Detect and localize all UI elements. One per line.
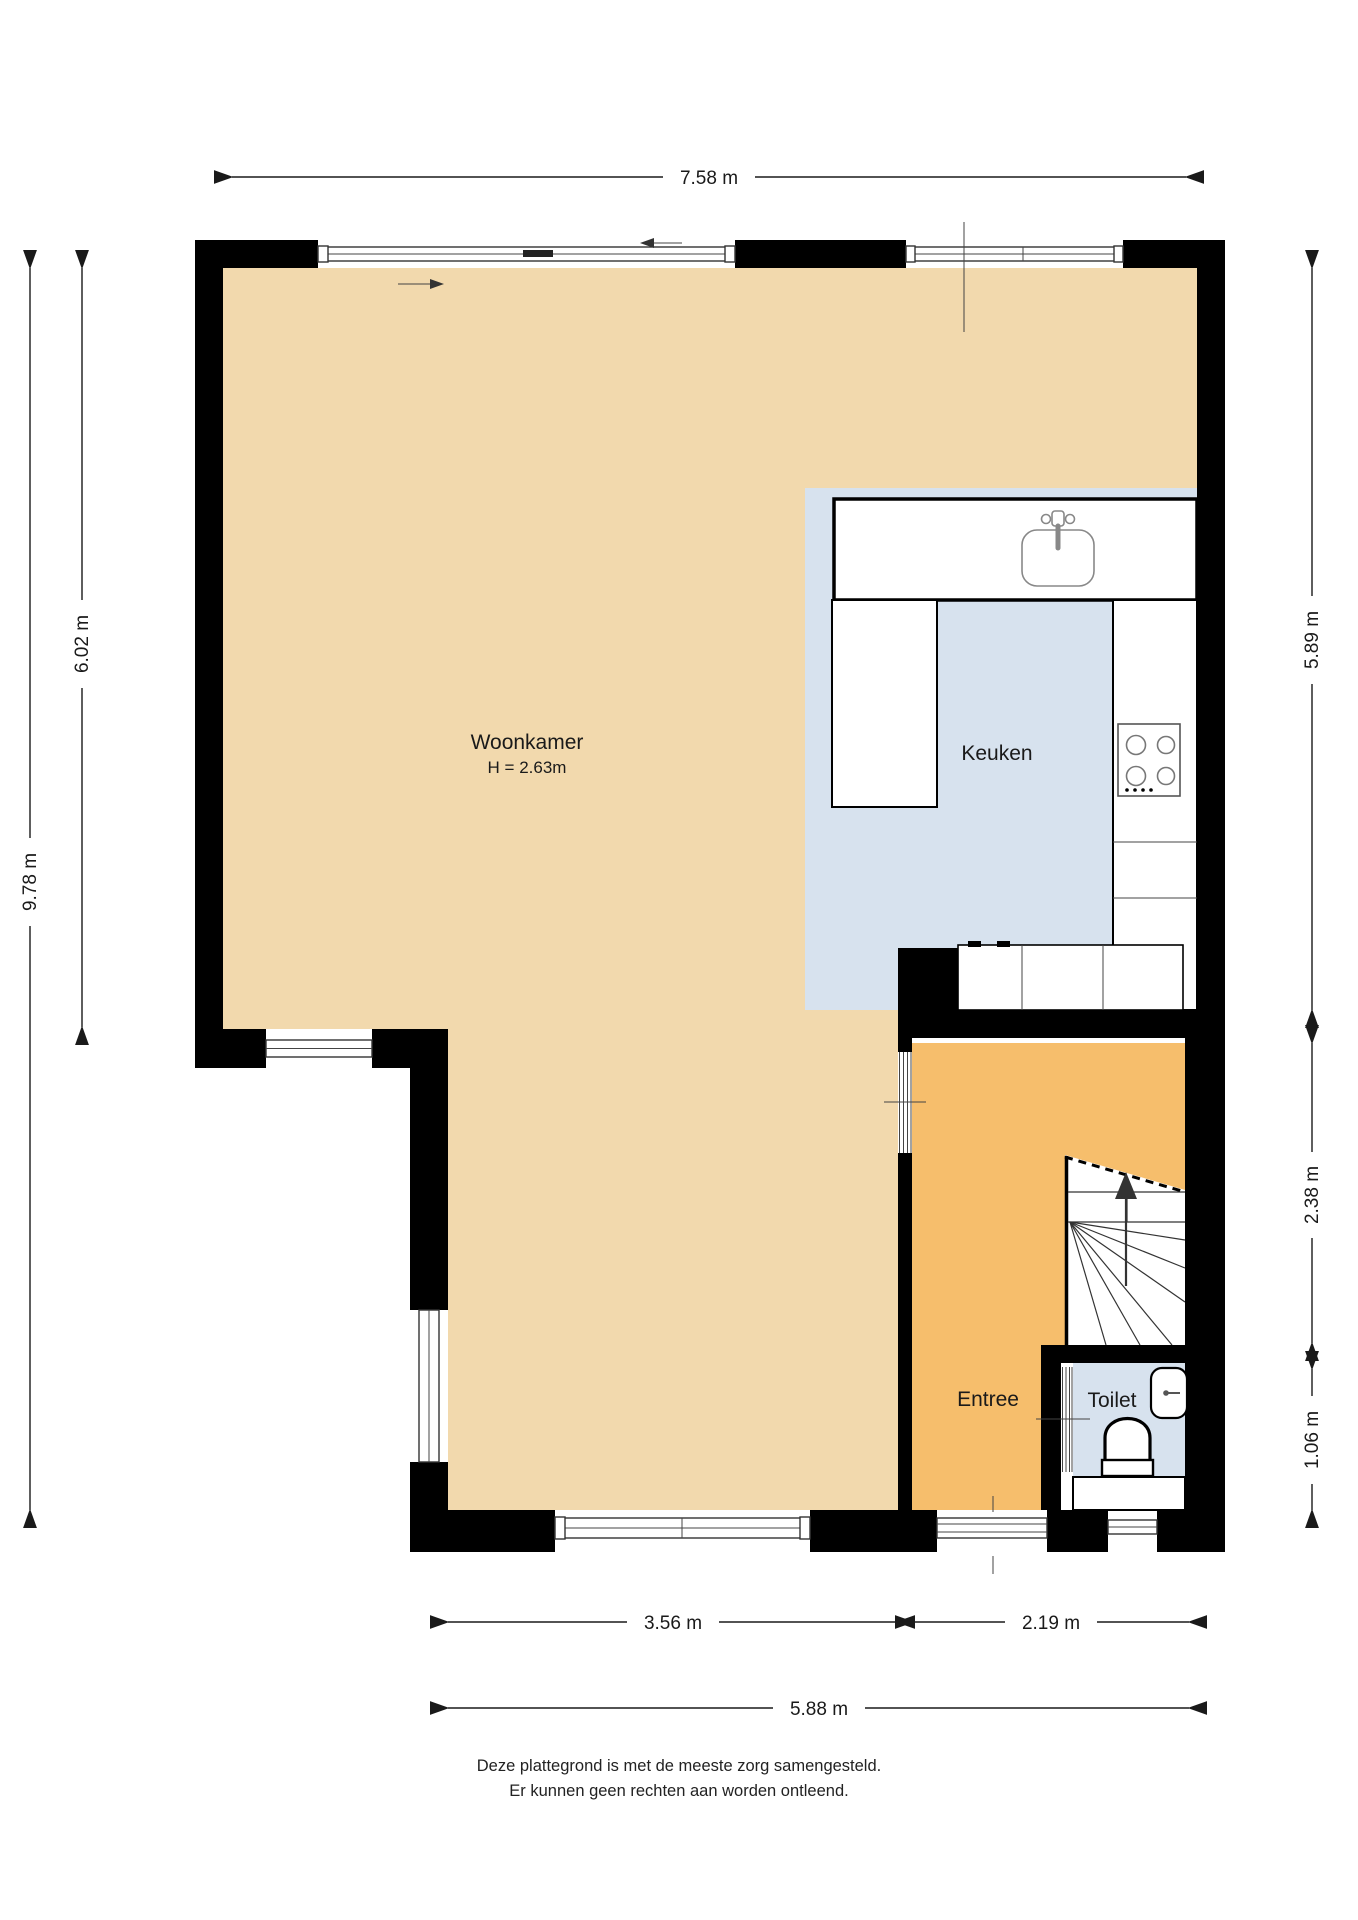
- dim-right-upper: 5.89 m: [1302, 268, 1323, 1010]
- dim-left-upper: 6.02 m: [72, 268, 93, 1027]
- toilet-icon: [1102, 1419, 1153, 1477]
- dim-right-middle: 2.38 m: [1302, 1043, 1323, 1343]
- entree-label: Entree: [957, 1388, 1019, 1411]
- wall-left-upper: [195, 240, 223, 1068]
- svg-text:1.06 m: 1.06 m: [1302, 1411, 1323, 1469]
- footer-line-2: Er kunnen geen rechten aan worden ontlee…: [509, 1782, 848, 1800]
- svg-text:5.89 m: 5.89 m: [1302, 611, 1323, 669]
- floorplan-canvas: Woonkamer H = 2.63m Keuken Entree Toilet…: [0, 0, 1358, 1920]
- svg-text:3.56 m: 3.56 m: [644, 1613, 702, 1634]
- dim-bottom-total: 5.88 m: [448, 1699, 1189, 1720]
- stove-4-burner-icon: [1118, 724, 1180, 796]
- wall-right-lower: [1185, 1038, 1225, 1552]
- svg-text:7.58 m: 7.58 m: [680, 168, 738, 189]
- woonkamer-height-note: H = 2.63m: [488, 758, 567, 777]
- floors: [223, 268, 1197, 1510]
- svg-text:2.19 m: 2.19 m: [1022, 1613, 1080, 1634]
- wall-toilet-left: [1041, 1345, 1061, 1510]
- counter-bottom-run: [958, 945, 1183, 1010]
- hand-basin-icon: [1151, 1368, 1187, 1418]
- wall-kitchen-bottom: [898, 1010, 1197, 1038]
- window-top-right: [906, 240, 1123, 268]
- svg-text:6.02 m: 6.02 m: [72, 615, 93, 673]
- window-top-sliding: [318, 240, 735, 268]
- dim-right-lower: 1.06 m: [1302, 1369, 1323, 1510]
- keuken-label: Keuken: [961, 742, 1032, 765]
- dim-top-width: 7.58 m: [232, 168, 1186, 189]
- window-bottom-living: [555, 1510, 810, 1552]
- counter-sink-run: [834, 499, 1197, 600]
- cabinet-handle: [968, 941, 981, 947]
- footer-line-1: Deze plattegrond is met de meeste zorg s…: [477, 1757, 881, 1775]
- toilet-label: Toilet: [1087, 1389, 1136, 1412]
- svg-text:9.78 m: 9.78 m: [20, 853, 41, 911]
- window-toilet: [1108, 1510, 1157, 1552]
- window-left-lower: [410, 1310, 448, 1462]
- dim-left-total: 9.78 m: [20, 268, 41, 1510]
- svg-text:5.88 m: 5.88 m: [790, 1699, 848, 1720]
- svg-text:2.38 m: 2.38 m: [1302, 1166, 1323, 1224]
- counter-left-column: [832, 600, 937, 807]
- footer-disclaimer: Deze plattegrond is met de meeste zorg s…: [477, 1757, 881, 1800]
- toilet-cistern-counter: [1073, 1477, 1185, 1510]
- dim-bottom-left: 3.56 m: [448, 1613, 897, 1634]
- wall-kitchen-corner: [898, 948, 958, 1012]
- dim-bottom-right: 2.19 m: [913, 1613, 1189, 1634]
- cabinet-handle: [997, 941, 1010, 947]
- floorplan-page: Woonkamer H = 2.63m Keuken Entree Toilet…: [0, 0, 1358, 1920]
- wall-bottom: [410, 1510, 1225, 1552]
- window-left-jog: [266, 1029, 372, 1068]
- sliding-leaf: [523, 250, 553, 257]
- wall-stairs-toilet: [1053, 1345, 1197, 1363]
- woonkamer-label: Woonkamer: [471, 731, 584, 754]
